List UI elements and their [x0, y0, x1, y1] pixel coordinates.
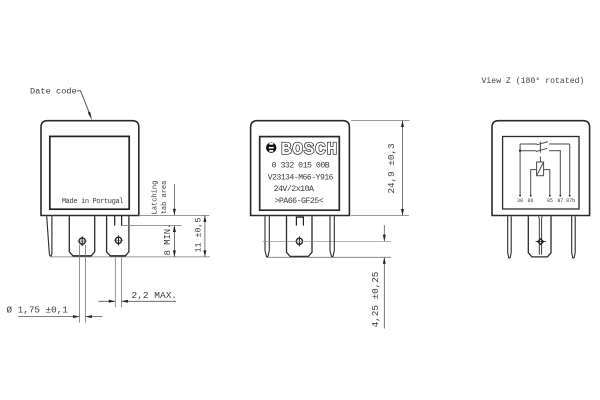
svg-text:8 MIN.: 8 MIN. [163, 224, 173, 256]
svg-text:11 ±0,5: 11 ±0,5 [194, 218, 203, 253]
svg-text:86: 86 [527, 198, 533, 204]
svg-text:View Z (180° rotated): View Z (180° rotated) [482, 77, 585, 86]
svg-text:24,9 ±0,3: 24,9 ±0,3 [386, 143, 397, 193]
svg-text:Date code: Date code [30, 87, 77, 97]
svg-text:tab area: tab area [161, 181, 169, 215]
svg-text:85: 85 [547, 198, 553, 204]
svg-text:87: 87 [557, 198, 563, 204]
svg-text:>PA66-GF25<: >PA66-GF25< [274, 197, 323, 206]
svg-text:24V/2x10A: 24V/2x10A [274, 184, 314, 194]
svg-text:V23134-M66-Y916: V23134-M66-Y916 [268, 173, 334, 182]
svg-text:0 332 015 00B: 0 332 015 00B [272, 162, 330, 171]
svg-text:30: 30 [517, 198, 523, 204]
svg-text:BOSCH: BOSCH [281, 140, 338, 160]
svg-text:Made in Portugal: Made in Portugal [62, 198, 123, 206]
svg-text:2,2 MAX.: 2,2 MAX. [132, 290, 178, 301]
svg-text:Ø 1,75 ±0,1: Ø 1,75 ±0,1 [7, 305, 69, 316]
svg-text:Latching: Latching [152, 181, 160, 215]
svg-text:87b: 87b [566, 198, 575, 204]
svg-text:4,25 ±0,25: 4,25 ±0,25 [370, 272, 381, 328]
